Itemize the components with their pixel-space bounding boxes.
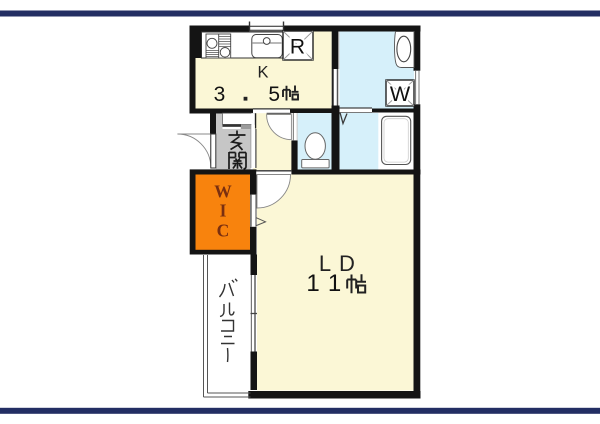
svg-text:I: I xyxy=(220,201,227,221)
svg-text:5: 5 xyxy=(268,83,280,106)
svg-text:1: 1 xyxy=(306,270,319,297)
svg-text:D: D xyxy=(339,251,355,276)
svg-text:C: C xyxy=(217,221,230,241)
svg-text:K: K xyxy=(257,64,268,82)
svg-text:3: 3 xyxy=(214,83,226,106)
svg-text:1: 1 xyxy=(328,270,341,297)
svg-text:W: W xyxy=(390,82,411,106)
svg-text:W: W xyxy=(214,182,232,202)
svg-text:R: R xyxy=(290,36,305,59)
